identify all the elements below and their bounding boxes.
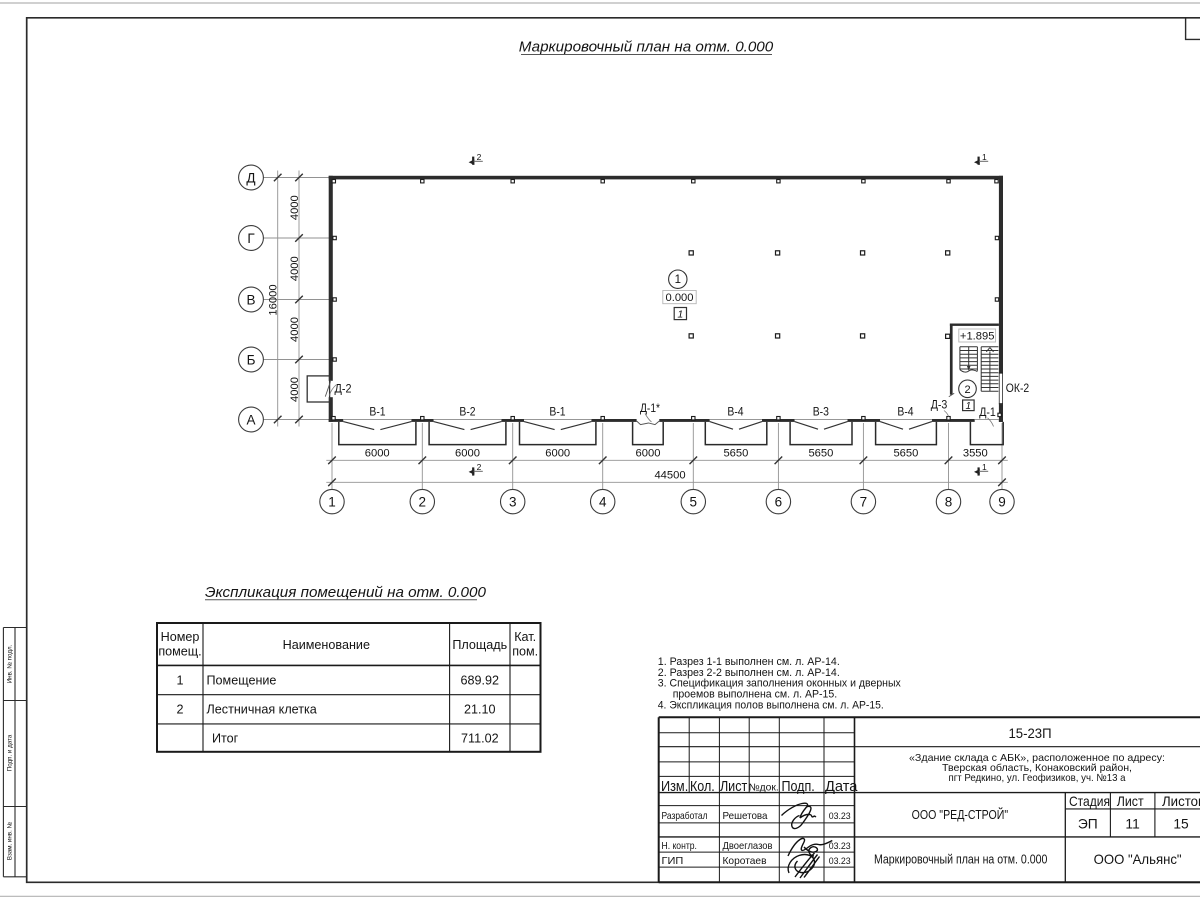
svg-text:1: 1 (982, 462, 987, 472)
svg-text:помещ.: помещ. (158, 645, 201, 659)
svg-text:Дата: Дата (825, 779, 858, 795)
svg-text:4000: 4000 (289, 377, 301, 402)
svg-text:1: 1 (677, 308, 683, 320)
svg-text:1: 1 (966, 401, 972, 412)
svg-text:5: 5 (690, 494, 698, 509)
svg-text:Итог: Итог (212, 732, 239, 746)
svg-text:Н. контр.: Н. контр. (662, 841, 697, 852)
svg-text:Двоеглазов: Двоеглазов (723, 841, 773, 852)
svg-text:В-2: В-2 (459, 404, 475, 418)
svg-text:15-23П: 15-23П (1009, 726, 1052, 742)
svg-text:В-1: В-1 (369, 404, 385, 418)
svg-text:В: В (246, 292, 255, 307)
svg-text:ООО "РЕД-СТРОЙ": ООО "РЕД-СТРОЙ" (912, 807, 1009, 822)
svg-text:пом.: пом. (512, 645, 538, 659)
svg-text:4000: 4000 (289, 195, 301, 220)
svg-text:6000: 6000 (636, 448, 661, 460)
svg-text:1: 1 (982, 152, 987, 162)
svg-text:3: 3 (509, 494, 517, 509)
svg-text:Экспликация помещений на отм.: Экспликация помещений на отм. 0.000 (205, 584, 486, 601)
svg-text:Д-1: Д-1 (979, 405, 996, 419)
svg-text:Маркировочный план на отм. 0.0: Маркировочный план на отм. 0.000 (874, 853, 1048, 867)
svg-text:Помещение: Помещение (207, 674, 277, 688)
svg-text:ГИП: ГИП (662, 856, 684, 867)
svg-text:2: 2 (419, 494, 427, 509)
svg-text:Б: Б (247, 352, 256, 367)
svg-text:5650: 5650 (723, 448, 748, 460)
svg-text:2: 2 (964, 384, 970, 396)
svg-text:Стадия: Стадия (1069, 794, 1110, 809)
svg-text:Инв. № подл.: Инв. № подл. (7, 644, 14, 683)
svg-text:Подп. и дата: Подп. и дата (7, 734, 14, 771)
svg-text:№док.: №док. (749, 782, 779, 793)
svg-text:В-3: В-3 (813, 404, 829, 418)
svg-text:6: 6 (775, 494, 783, 509)
svg-text:15: 15 (1173, 817, 1189, 832)
svg-text:16000: 16000 (268, 284, 280, 315)
svg-text:Кол.: Кол. (690, 779, 715, 795)
svg-text:Д: Д (246, 170, 255, 185)
svg-text:Коротаев: Коротаев (723, 856, 768, 867)
svg-text:Лист: Лист (720, 779, 748, 795)
svg-text:Маркировочный план на отм. 0.0: Маркировочный план на отм. 0.000 (519, 39, 774, 56)
svg-text:4000: 4000 (289, 317, 301, 342)
svg-text:В-1: В-1 (549, 404, 565, 418)
svg-text:6000: 6000 (365, 448, 390, 460)
svg-text:6000: 6000 (455, 448, 480, 460)
svg-text:1: 1 (675, 274, 681, 286)
svg-text:Подп.: Подп. (781, 779, 814, 795)
svg-text:Наименование: Наименование (283, 638, 370, 652)
svg-text:Листов: Листов (1162, 794, 1200, 809)
svg-text:4. Экспликация полов выполнена: 4. Экспликация полов выполнена см. л. АР… (658, 700, 884, 712)
svg-text:+1.895: +1.895 (960, 331, 995, 343)
svg-text:689.92: 689.92 (461, 674, 500, 688)
svg-text:11: 11 (1125, 817, 1139, 832)
svg-text:Решетова: Решетова (723, 811, 768, 822)
svg-text:5650: 5650 (893, 448, 918, 460)
svg-text:6000: 6000 (545, 448, 570, 460)
svg-text:1: 1 (328, 494, 336, 509)
svg-text:21.10: 21.10 (464, 703, 496, 717)
svg-text:А: А (246, 412, 255, 427)
svg-text:Разработал: Разработал (662, 810, 708, 822)
svg-text:03.23: 03.23 (829, 811, 851, 821)
svg-text:1: 1 (176, 674, 183, 688)
svg-text:9: 9 (998, 494, 1006, 509)
svg-text:Д-1*: Д-1* (640, 401, 660, 415)
svg-text:3550: 3550 (963, 448, 988, 460)
svg-text:В-4: В-4 (897, 404, 913, 418)
svg-text:ОК-2: ОК-2 (1006, 381, 1029, 395)
svg-text:5650: 5650 (808, 448, 833, 460)
svg-text:ЭП: ЭП (1078, 817, 1098, 832)
svg-text:8: 8 (945, 494, 953, 509)
svg-text:ООО "Альянс": ООО "Альянс" (1094, 852, 1182, 867)
svg-text:Площадь: Площадь (452, 638, 507, 652)
svg-text:Изм.: Изм. (661, 779, 688, 795)
svg-text:03.23: 03.23 (829, 841, 851, 851)
svg-text:4: 4 (599, 494, 607, 509)
svg-text:4000: 4000 (289, 256, 301, 281)
svg-text:44500: 44500 (654, 470, 685, 482)
svg-text:Номер: Номер (161, 630, 200, 644)
svg-text:2: 2 (477, 462, 482, 472)
svg-text:03.23: 03.23 (829, 856, 851, 866)
svg-text:7: 7 (860, 494, 868, 509)
svg-text:2: 2 (176, 703, 183, 717)
svg-text:Г: Г (247, 231, 255, 246)
svg-text:Лестничная клетка: Лестничная клетка (207, 703, 317, 717)
svg-text:Д-3: Д-3 (931, 398, 948, 412)
svg-text:Д-2: Д-2 (335, 382, 352, 396)
svg-text:711.02: 711.02 (461, 732, 499, 746)
svg-text:В-4: В-4 (727, 404, 743, 418)
svg-text:Лист: Лист (1117, 794, 1145, 809)
svg-text:пгт Редкино, ул. Геофизиков, у: пгт Редкино, ул. Геофизиков, уч. №13 а (949, 772, 1126, 784)
svg-text:0.000: 0.000 (666, 292, 694, 304)
svg-text:Взам. инв. №: Взам. инв. № (7, 821, 14, 860)
svg-text:2: 2 (477, 152, 482, 162)
svg-text:Кат.: Кат. (514, 630, 536, 644)
